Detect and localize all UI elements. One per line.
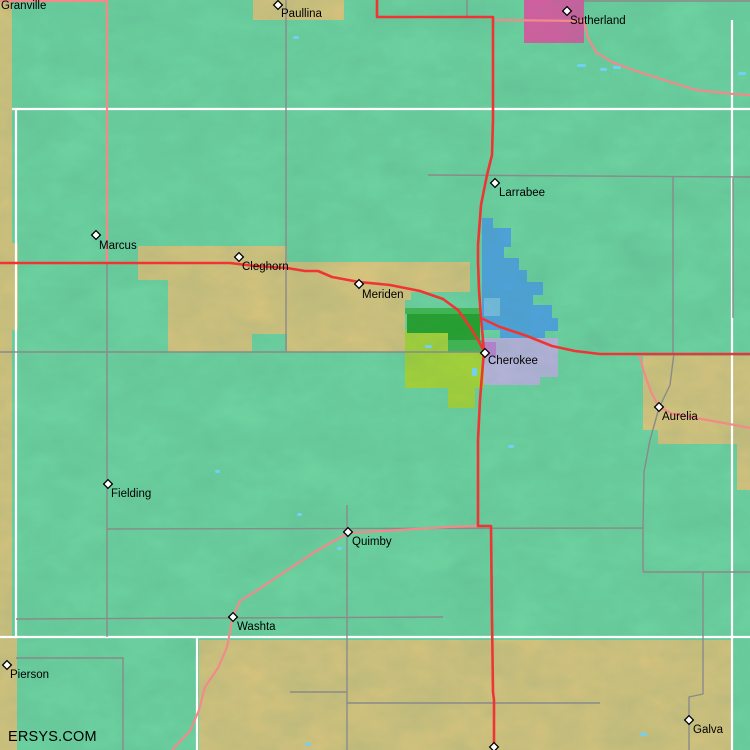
town-label-galva: Galva: [693, 724, 724, 736]
water-feature: [640, 733, 647, 736]
water-feature: [577, 64, 586, 67]
town-label-marcus: Marcus: [99, 240, 137, 252]
water-feature: [508, 445, 514, 448]
town-label-granville: Granville: [1, 0, 46, 12]
map-canvas: GranvillePaullinaSutherlandLarrabeeMarcu…: [0, 0, 750, 750]
water-feature: [293, 36, 299, 39]
town-label-quimby: Quimby: [352, 536, 392, 548]
town-label-meriden: Meriden: [362, 289, 404, 301]
town-label-cleghorn: Cleghorn: [242, 261, 289, 273]
town-label-paullina: Paullina: [281, 8, 323, 20]
town-label-aurelia: Aurelia: [662, 411, 698, 423]
water-feature: [215, 470, 220, 473]
town-label-cherokee: Cherokee: [488, 355, 538, 367]
town-label-larrabee: Larrabee: [499, 187, 545, 199]
water-feature: [738, 72, 746, 75]
town-label-washta: Washta: [237, 621, 276, 633]
water-feature: [600, 68, 607, 71]
town-label-fielding: Fielding: [111, 488, 151, 500]
water-feature: [613, 66, 621, 69]
water-feature: [305, 743, 311, 746]
town-label-pierson: Pierson: [10, 669, 49, 681]
gray-road-h-528: [107, 528, 643, 529]
water-feature: [425, 345, 432, 348]
ersys-county-map: GranvillePaullinaSutherlandLarrabeeMarcu…: [0, 0, 750, 750]
water-feature: [337, 547, 342, 550]
water-feature: [472, 368, 477, 376]
town-label-sutherland: Sutherland: [570, 15, 626, 27]
ersys-watermark: ERSYS.COM: [8, 729, 97, 745]
water-feature: [297, 513, 302, 516]
